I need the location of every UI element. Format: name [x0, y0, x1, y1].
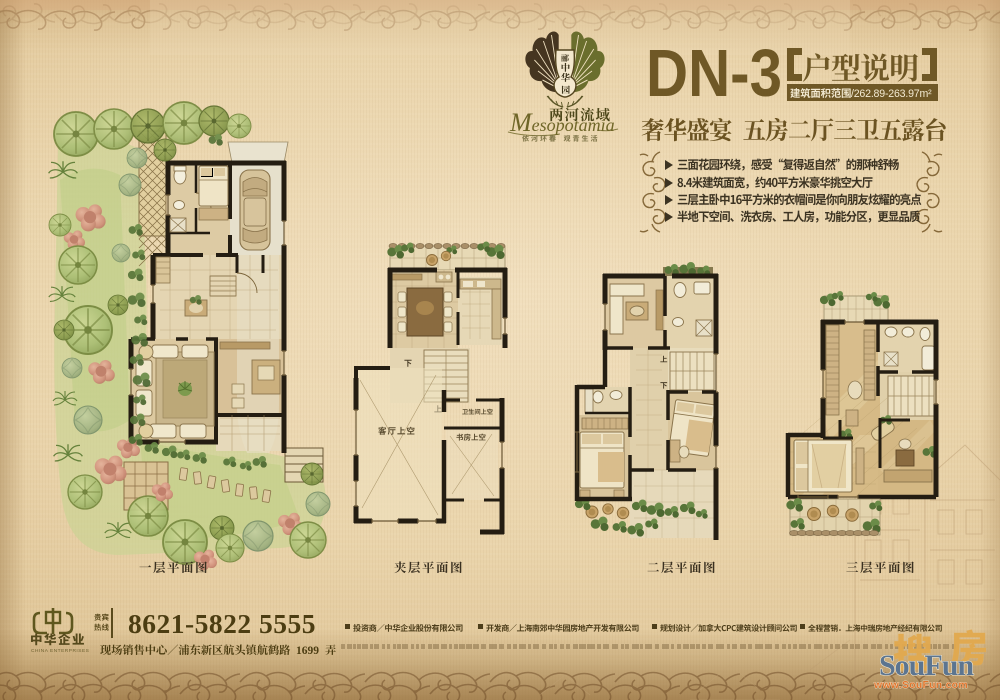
- svg-text:1699: 1699: [296, 645, 319, 657]
- svg-text:www.SouFun.com: www.SouFun.com: [873, 680, 968, 691]
- svg-text:DN-3: DN-3: [646, 36, 782, 111]
- svg-text:8621-5822 5555: 8621-5822 5555: [128, 608, 316, 639]
- svg-text:SouFun: SouFun: [879, 649, 974, 682]
- svg-text:CHINA ENTERPRISES: CHINA ENTERPRISES: [31, 648, 89, 654]
- svg-text:/262.89-263.97m²: /262.89-263.97m²: [851, 88, 932, 100]
